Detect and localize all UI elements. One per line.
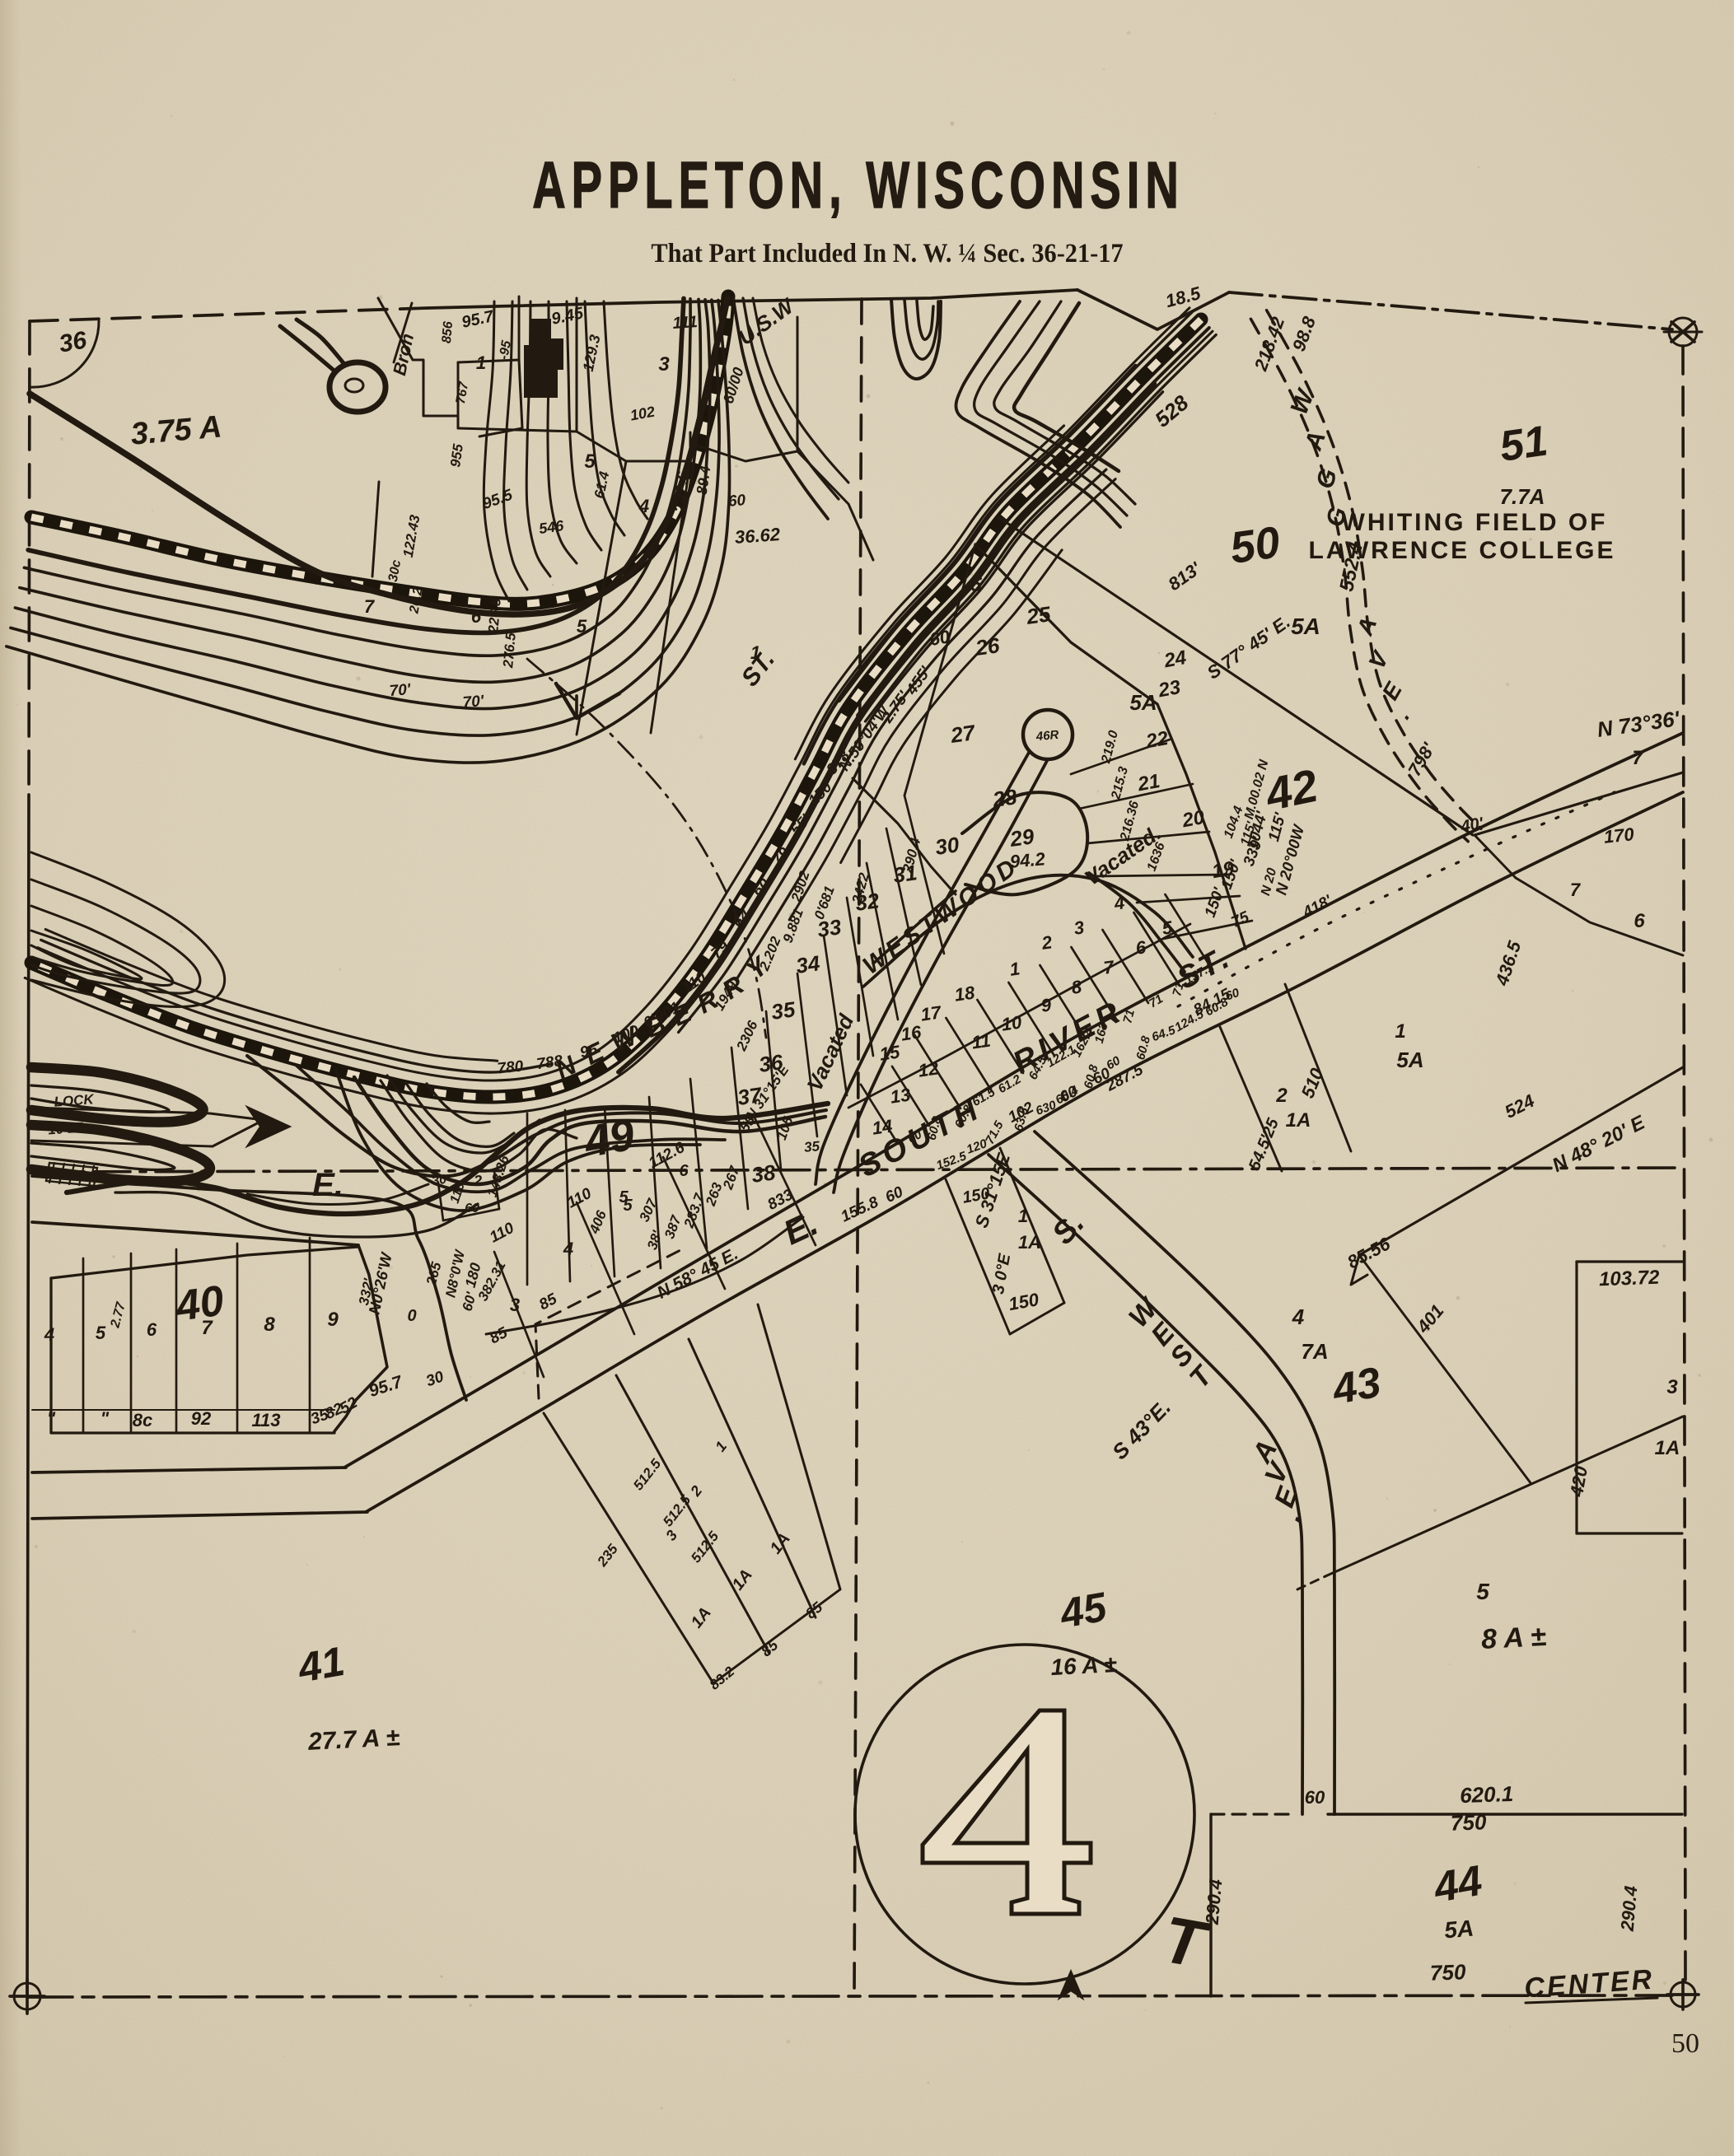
svg-text:8 A ±: 8 A ± [1480, 1621, 1547, 1655]
svg-text:3: 3 [1666, 1376, 1678, 1398]
svg-text:92: 92 [191, 1408, 212, 1429]
svg-text:3: 3 [510, 1295, 520, 1315]
svg-text:27: 27 [948, 720, 977, 748]
svg-text:6: 6 [679, 1162, 689, 1180]
svg-text:856: 856 [440, 320, 456, 343]
svg-text:60: 60 [465, 1202, 479, 1216]
svg-text:27.7 A ±: 27.7 A ± [306, 1724, 400, 1756]
svg-text:50: 50 [1671, 2028, 1699, 2059]
svg-text:7: 7 [201, 1317, 213, 1339]
svg-text:113: 113 [251, 1410, 280, 1430]
svg-text:24: 24 [1161, 646, 1188, 672]
svg-text:2: 2 [547, 356, 559, 376]
svg-text:1: 1 [476, 352, 486, 373]
svg-text:30: 30 [933, 832, 960, 860]
svg-text:": " [47, 1408, 56, 1429]
svg-text:1A: 1A [1655, 1437, 1680, 1459]
svg-text:40: 40 [172, 1276, 227, 1331]
svg-text:5A: 5A [1396, 1048, 1423, 1072]
svg-text:49: 49 [580, 1110, 638, 1168]
svg-text:13: 13 [889, 1084, 912, 1107]
svg-text:70': 70' [389, 681, 413, 700]
svg-text:6: 6 [471, 606, 482, 627]
svg-text:34: 34 [794, 950, 821, 978]
svg-text:8c: 8c [133, 1410, 152, 1430]
svg-text:9: 9 [327, 1309, 339, 1331]
svg-text:750: 750 [1429, 1959, 1466, 1986]
svg-text:18: 18 [953, 982, 976, 1005]
svg-text:35: 35 [803, 1138, 820, 1155]
svg-text:51: 51 [1497, 417, 1550, 470]
svg-text:5A: 5A [1291, 614, 1320, 639]
svg-text:16: 16 [900, 1021, 923, 1044]
svg-text:4: 4 [563, 1239, 573, 1259]
svg-text:APPLETON, WISCONSIN: APPLETON, WISCONSIN [532, 147, 1185, 222]
svg-text:35: 35 [769, 996, 797, 1024]
svg-text:36.62: 36.62 [734, 524, 781, 548]
svg-text:46R: 46R [1035, 728, 1059, 744]
svg-text:38: 38 [750, 1160, 777, 1188]
svg-text:2: 2 [473, 1173, 482, 1189]
svg-text:43: 43 [1329, 1359, 1385, 1414]
svg-text:22: 22 [1143, 727, 1171, 754]
svg-text:16 A ±: 16 A ± [1050, 1651, 1118, 1680]
svg-text:276.5: 276.5 [500, 632, 519, 670]
svg-text:170: 170 [1603, 824, 1636, 847]
svg-text:226.5: 226.5 [485, 597, 504, 635]
svg-text:1A: 1A [1018, 1232, 1041, 1253]
svg-text:LAWRENCE COLLEGE: LAWRENCE COLLEGE [1308, 537, 1615, 564]
svg-text:23: 23 [1156, 676, 1183, 702]
svg-text:26: 26 [973, 632, 1001, 660]
svg-text:10: 10 [1000, 1011, 1023, 1034]
svg-text:780: 780 [497, 1057, 525, 1077]
svg-text:7: 7 [1632, 747, 1644, 769]
svg-text:7: 7 [1570, 880, 1582, 900]
svg-text:242.6: 242.6 [671, 470, 693, 515]
svg-text:6: 6 [147, 1319, 157, 1340]
svg-text:103.72: 103.72 [1599, 1267, 1661, 1291]
svg-text:0: 0 [407, 1307, 416, 1325]
svg-text:5: 5 [623, 1197, 633, 1215]
svg-text:7: 7 [364, 596, 376, 617]
svg-text:788: 788 [535, 1052, 564, 1073]
svg-text:750: 750 [1450, 1809, 1487, 1836]
svg-text:7A: 7A [1301, 1339, 1328, 1364]
svg-text:290.4: 290.4 [1202, 1878, 1227, 1926]
svg-text:20: 20 [1180, 806, 1207, 833]
svg-text:7.7A: 7.7A [1500, 484, 1545, 509]
svg-text:94.2: 94.2 [1009, 848, 1047, 872]
svg-text:12: 12 [917, 1057, 940, 1080]
svg-text:1: 1 [750, 642, 760, 663]
svg-text:21: 21 [1135, 770, 1161, 796]
svg-text:4: 4 [638, 496, 649, 516]
svg-text:111: 111 [672, 313, 699, 333]
svg-text:11: 11 [970, 1030, 992, 1053]
svg-text:955: 955 [447, 442, 466, 468]
svg-text:WHITING FIELD OF: WHITING FIELD OF [1342, 509, 1608, 536]
svg-text:620.1: 620.1 [1460, 1781, 1514, 1808]
svg-text:546: 546 [538, 517, 566, 537]
svg-text:5: 5 [577, 616, 587, 637]
svg-text:28: 28 [990, 784, 1018, 812]
svg-text:290.4: 290.4 [1617, 1885, 1642, 1933]
svg-text:3: 3 [658, 353, 670, 376]
svg-text:8: 8 [264, 1314, 275, 1336]
svg-text:5: 5 [96, 1323, 106, 1343]
svg-text:41: 41 [294, 1638, 348, 1692]
svg-text:60: 60 [727, 492, 746, 511]
svg-text:29: 29 [1007, 824, 1035, 852]
svg-text:4: 4 [1292, 1304, 1305, 1329]
svg-text:25: 25 [1024, 601, 1052, 629]
svg-text:44: 44 [1430, 1857, 1486, 1912]
svg-text:10 15: 10 15 [48, 1120, 84, 1138]
svg-text:1A: 1A [1286, 1109, 1311, 1132]
svg-text:50: 50 [1227, 517, 1283, 573]
svg-text:": " [100, 1408, 110, 1429]
svg-text:6: 6 [1634, 910, 1645, 932]
svg-text:14: 14 [871, 1115, 894, 1138]
svg-text:30: 30 [431, 1173, 448, 1189]
svg-text:45: 45 [1056, 1584, 1111, 1637]
svg-text:LOCK: LOCK [54, 1091, 96, 1109]
svg-text:15: 15 [878, 1041, 901, 1064]
svg-text:1: 1 [1395, 1020, 1405, 1043]
svg-text:1: 1 [1018, 1206, 1028, 1226]
svg-text:5: 5 [970, 574, 982, 596]
svg-text:That Part Included In N. W. ¼: That Part Included In N. W. ¼ Sec. 36-21… [651, 238, 1123, 268]
svg-text:5: 5 [584, 450, 596, 473]
svg-text:5A: 5A [1443, 1916, 1475, 1944]
svg-text:2: 2 [1275, 1085, 1288, 1107]
svg-text:E.: E. [312, 1167, 344, 1203]
svg-text:4: 4 [44, 1324, 54, 1345]
svg-text:5: 5 [1476, 1579, 1489, 1604]
svg-text:60: 60 [928, 626, 951, 650]
svg-text:5A: 5A [1129, 690, 1157, 715]
svg-text:36: 36 [57, 326, 89, 357]
svg-text:60: 60 [1305, 1787, 1325, 1808]
svg-text:70': 70' [462, 693, 486, 712]
